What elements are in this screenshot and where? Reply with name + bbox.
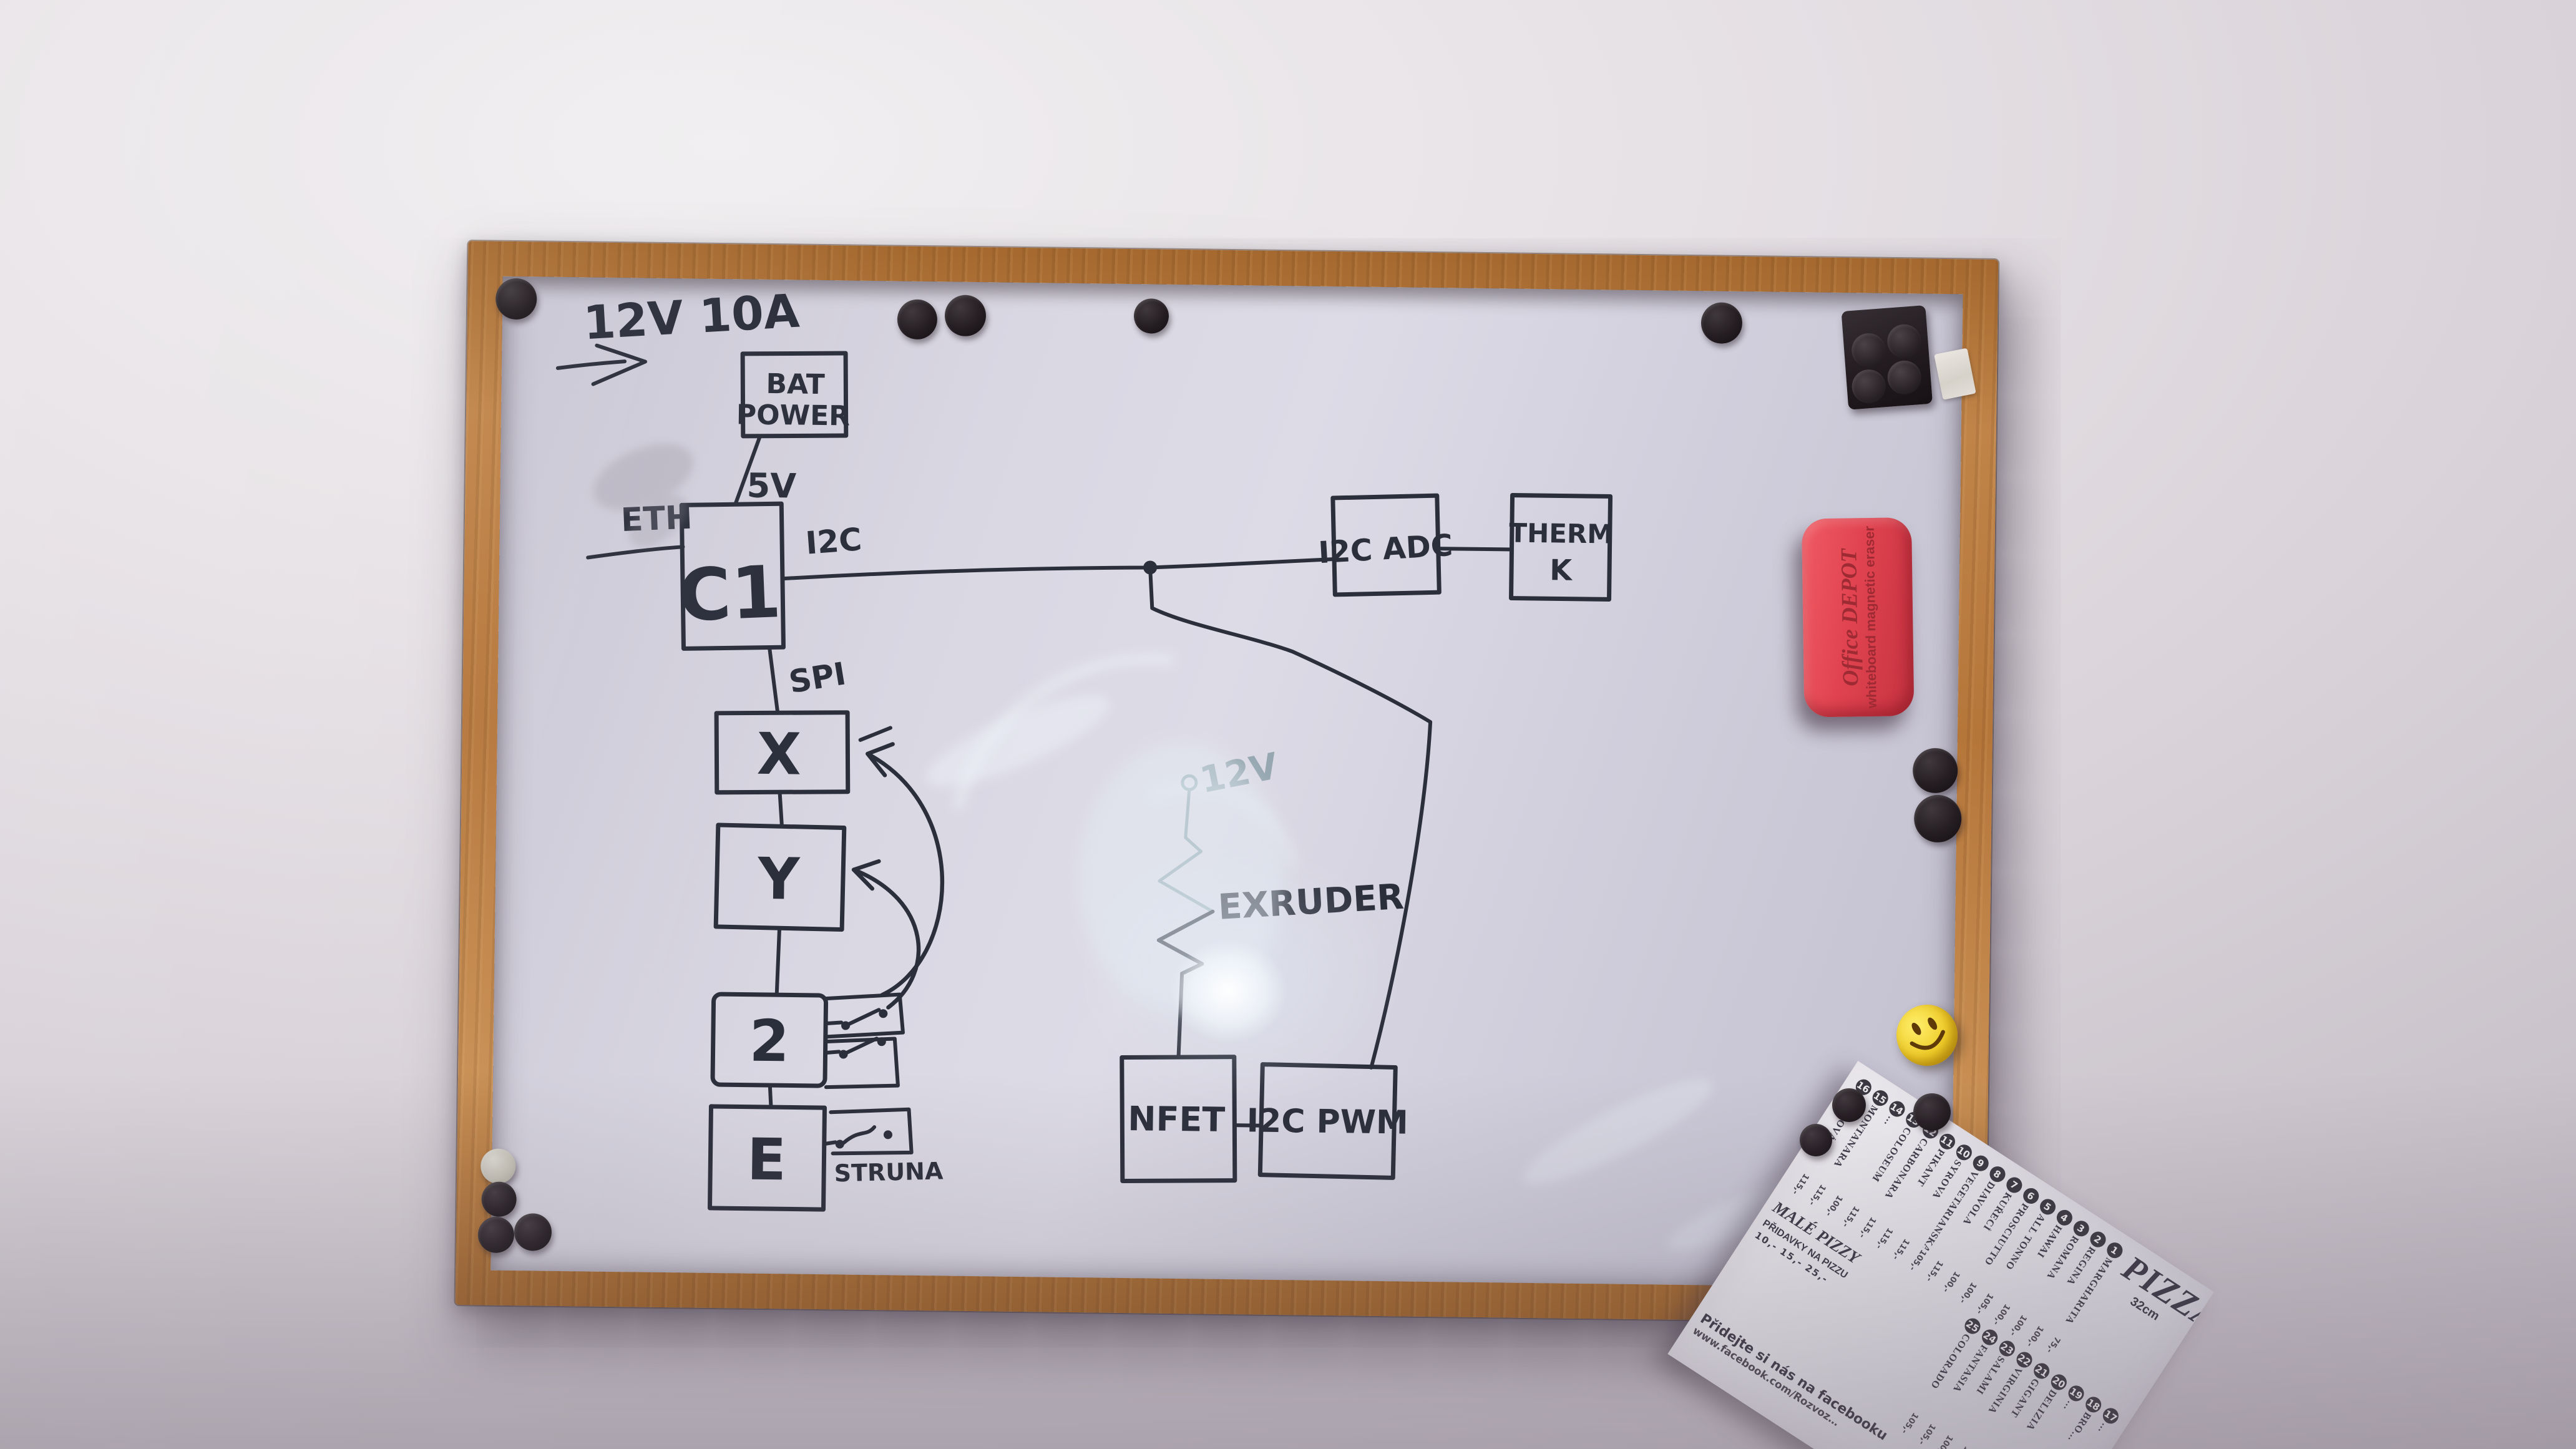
whiteboard-frame: 12V 10A BAT POWER 5V ETH C1 I2C I2C ADC <box>456 241 1999 1324</box>
label-i2c: I2C <box>804 521 863 562</box>
wire-eth <box>588 545 683 559</box>
label-e: E <box>746 1126 786 1194</box>
eraser-brand: Office DEPOT <box>1836 524 1865 711</box>
label-c1: C1 <box>677 550 783 638</box>
heater-node <box>1183 776 1196 789</box>
label-extruder: EXRUDER <box>1217 877 1405 928</box>
magnet-black <box>1851 368 1887 404</box>
heater-coil-wire-nfet <box>1158 911 1213 1058</box>
label-12v-heater: 12V <box>1196 744 1282 801</box>
magnet-black <box>1913 1093 1951 1131</box>
label-bat: BAT <box>766 368 825 401</box>
switch-e-contact-b <box>884 1130 892 1139</box>
switch-e-blade <box>824 1126 874 1144</box>
arrow-tick-x <box>861 728 890 741</box>
magnet-black <box>1800 1124 1832 1156</box>
eraser-print: Office DEPOT whiteboard magnetic eraser <box>1836 524 1880 711</box>
label-5v: 5V <box>746 466 796 506</box>
switch-z1-blade <box>826 1009 879 1024</box>
label-therm-k: K <box>1549 553 1574 587</box>
smiley-mouth <box>1911 1032 1946 1052</box>
smiley-eye <box>1910 1022 1923 1037</box>
menu-item-price: 75,- <box>2044 1335 2062 1355</box>
label-x: X <box>756 721 801 788</box>
label-i2c-adc: I2C ADC <box>1317 528 1453 570</box>
smiley-eye <box>1926 1016 1939 1031</box>
whiteboard-eraser: Office DEPOT whiteboard magnetic eraser <box>1802 517 1914 717</box>
wire-spi <box>769 650 778 713</box>
magnet-black <box>1886 359 1923 396</box>
label-power: POWER <box>736 399 851 432</box>
label-y: Y <box>757 846 801 913</box>
arc-endstop-y <box>852 870 919 1008</box>
label-struna: STRUNA <box>834 1157 944 1187</box>
magnet-black <box>1850 332 1886 368</box>
wire-x-y <box>779 793 783 826</box>
wire-adc-therm <box>1438 549 1511 549</box>
eraser-description: whiteboard magnetic eraser <box>1861 524 1880 711</box>
label-therm: THERM <box>1509 517 1613 549</box>
label-spi: SPI <box>786 655 848 700</box>
arc-endstop-x <box>865 754 944 995</box>
diagram-svg: 12V 10A BAT POWER 5V ETH C1 I2C I2C ADC <box>456 241 1999 1324</box>
magnet-tray <box>1842 305 1933 410</box>
menu-header: PIZZA 32cm <box>2107 1248 2204 1337</box>
heater-coil-faint <box>1159 790 1214 912</box>
wire-i2c <box>783 552 1334 585</box>
label-supply: 12V 10A <box>582 285 801 351</box>
wire-z-e <box>769 1086 771 1107</box>
wire-y-z <box>777 929 779 995</box>
magnet-black <box>1886 323 1922 359</box>
wall: 12V 10A BAT POWER 5V ETH C1 I2C I2C ADC <box>0 0 2576 1449</box>
label-nfet: NFET <box>1128 1099 1226 1139</box>
supply-arrow-shaft <box>558 361 625 369</box>
label-i2c-pwm: I2C PWM <box>1246 1102 1408 1141</box>
label-z: 2 <box>749 1008 789 1075</box>
magnet-black <box>1832 1088 1866 1122</box>
